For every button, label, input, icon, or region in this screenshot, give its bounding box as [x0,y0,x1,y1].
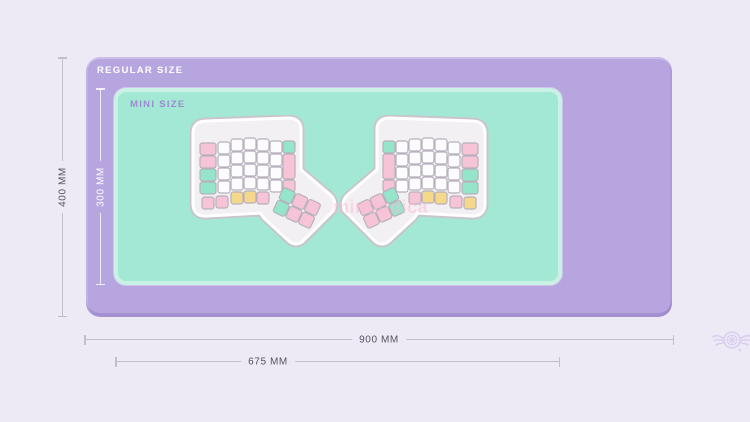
dimension-line [115,361,560,362]
tick [58,316,67,318]
winged-circle-logo-icon [710,324,750,358]
tick [96,88,105,90]
regular-size-label: REGULAR SIZE [97,65,183,76]
keyboard-half-left-graphic [188,115,340,249]
dimension-label-400mm: 400 MM [58,161,69,213]
keyboard-left-half [188,115,340,254]
tick [84,335,86,345]
keyboard-right-half [338,115,490,254]
dimension-label-900mm: 900 MM [352,335,406,346]
mini-size-label: MINI SIZE [130,99,186,110]
tick [673,335,675,345]
tick [559,357,561,367]
dimension-label-300mm: 300 MM [96,161,107,213]
dimension-label-675mm: 675 MM [241,357,295,368]
tick [96,284,105,286]
tick [58,57,67,59]
brand-watermark: mintlodica [333,197,428,218]
keyboard-half-right-graphic [338,115,490,249]
tick [115,357,117,367]
size-comparison-diagram: REGULAR SIZE MINI SIZE mintlodica 400 MM [0,0,750,422]
